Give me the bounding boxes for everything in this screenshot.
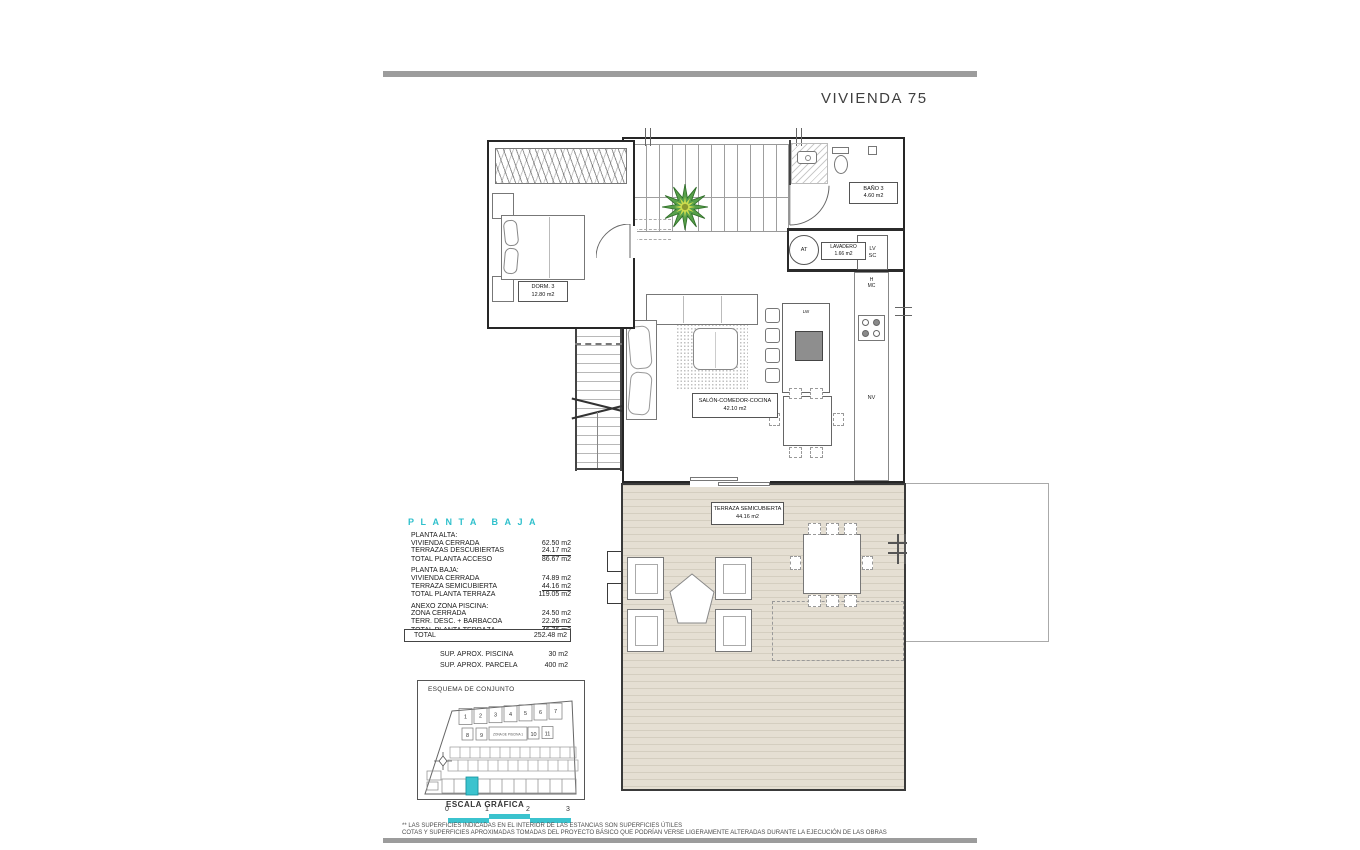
- extra-value: 30 m2: [549, 650, 568, 660]
- lw-tag: LW: [803, 309, 809, 315]
- site-plan-box: ESQUEMA DE CONJUNTO 1 2 3 4 5 6 7 8 9 10: [417, 680, 585, 800]
- area-legend: PLANTA ALTA: VIVIENDA CERRADA62.50 m2 TE…: [411, 532, 571, 634]
- legend-row: TOTAL PLANTA TERRAZA119.05 m2: [411, 591, 571, 599]
- extra-row: SUP. APROX. PARCELA 400 m2: [440, 661, 568, 671]
- water-heater: AT: [789, 235, 819, 265]
- lounge-chair-cushion: [723, 616, 746, 646]
- survey-tick: [650, 128, 651, 146]
- section-cut-line: [575, 343, 622, 345]
- lv-tag: LV: [869, 246, 875, 253]
- dining-chair: [810, 447, 823, 458]
- sofa-cushion: [627, 371, 653, 416]
- plot-number: 11: [545, 732, 551, 738]
- uncovered-terrace-area: [904, 483, 1049, 642]
- plot-number: 10: [530, 732, 536, 738]
- survey-tick: [645, 128, 646, 146]
- room-label-lavadero: LAVADERO 1.66 m2: [821, 242, 866, 260]
- total-label: TOTAL: [414, 632, 436, 639]
- extra-label: SUP. APROX. PARCELA: [440, 661, 518, 671]
- bbq-detail: [904, 534, 906, 564]
- bedroom-door-opening: [631, 226, 637, 258]
- lounge-chair: [627, 557, 664, 600]
- bottom-divider-bar: [383, 838, 977, 843]
- lounge-chair: [627, 609, 664, 652]
- legend-title: PLANTA BAJA: [408, 517, 542, 527]
- toilet-tank: [832, 147, 849, 154]
- plot-number: 4: [509, 712, 512, 718]
- legend-value: 119.05 m2: [538, 591, 571, 599]
- sliding-door-panel: [718, 482, 770, 486]
- lounge-chair-cushion: [635, 616, 658, 646]
- pool-zone-label: ZONA DE PISCINA 1: [493, 733, 523, 737]
- legend-value: 62.50 m2: [542, 540, 571, 548]
- bar-stool: [765, 308, 780, 323]
- coffee-table-line: [715, 332, 716, 368]
- room-name: TERRAZA SEMICUBIERTA: [714, 506, 782, 513]
- scale-tick: 3: [566, 806, 570, 813]
- sliding-door: [690, 477, 770, 487]
- extra-label: SUP. APROX. PISCINA: [440, 650, 513, 660]
- sink-drain: [805, 155, 811, 161]
- dining-chair: [789, 447, 802, 458]
- terrace-chair: [844, 595, 857, 607]
- bbq-detail: [888, 542, 907, 544]
- legend-row: PLANTA ALTA:: [411, 532, 571, 540]
- compass-icon: [434, 752, 452, 770]
- extra-value: 400 m2: [545, 661, 568, 671]
- plot-number: 3: [494, 713, 497, 719]
- lounge-chair: [715, 609, 752, 652]
- plant-icon: [661, 183, 709, 231]
- site-plan-map: 1 2 3 4 5 6 7 8 9 10 11 ZONA DE PISCINA …: [422, 697, 582, 797]
- oven-microwave: H MC: [855, 275, 888, 291]
- entry-door-arc: [789, 185, 830, 226]
- footnote-line2: COTAS Y SUPERFICIES APROXIMADAS TOMADAS …: [402, 830, 887, 836]
- scale-segment: [489, 814, 530, 819]
- terrace-chair: [826, 523, 839, 535]
- highlighted-unit: [466, 777, 478, 795]
- water-heater-tag: AT: [801, 247, 808, 254]
- stair-rail: [597, 412, 598, 469]
- plot-number: 8: [466, 733, 469, 739]
- island-sink: [795, 331, 823, 361]
- coffee-table: [693, 328, 738, 370]
- bar-stool: [765, 328, 780, 343]
- plot-number: 9: [480, 733, 483, 739]
- planter: [607, 583, 622, 604]
- room-name: LAVADERO: [830, 244, 857, 251]
- kitchen-counter: [854, 272, 889, 481]
- sink: [797, 151, 817, 164]
- dining-table: [783, 396, 832, 446]
- burner: [862, 330, 869, 337]
- bbq-detail: [888, 552, 907, 554]
- pillow: [503, 247, 519, 274]
- plan-sheet: VIVIENDA 75: [0, 0, 1360, 850]
- bed-cover-line: [549, 217, 550, 278]
- page-title: VIVIENDA 75: [821, 90, 928, 107]
- wardrobe: [495, 148, 627, 184]
- sliding-door-panel: [690, 477, 738, 481]
- plot-number: 6: [539, 710, 542, 716]
- room-label-terraza: TERRAZA SEMICUBIERTA 44.16 m2: [711, 502, 784, 525]
- legend-label: ANEXO ZONA PISCINA:: [411, 603, 488, 611]
- scale-tick: 0: [445, 806, 449, 813]
- plot-number: 2: [479, 714, 482, 720]
- stair-landing-line: [633, 197, 788, 198]
- site-plan-title: ESQUEMA DE CONJUNTO: [428, 686, 514, 693]
- sofa: [646, 294, 758, 325]
- room-area: 44.16 m2: [736, 514, 759, 521]
- plot-number: 7: [554, 709, 557, 715]
- legend-row: TERRAZAS DESCUBIERTAS24.17 m2: [411, 547, 571, 556]
- plot-number: 5: [524, 711, 527, 717]
- legend-row: ZONA CERRADA24.50 m2: [411, 610, 571, 618]
- lounge-chair: [715, 557, 752, 600]
- legend-value: 44.16 m2: [542, 583, 571, 592]
- bedroom-door-arc: [596, 224, 631, 259]
- extra-row: SUP. APROX. PISCINA 30 m2: [440, 650, 568, 660]
- stair-bottom-edge: [575, 468, 622, 470]
- lavadero-wall: [787, 228, 905, 231]
- room-name: DORM. 3: [532, 284, 555, 291]
- legend-label: VIVIENDA CERRADA: [411, 575, 479, 583]
- mc-tag: MC: [868, 283, 876, 289]
- legend-label: TERRAZA SEMICUBIERTA: [411, 583, 497, 592]
- room-label-dorm3: DORM. 3 12.80 m2: [518, 281, 568, 302]
- terrace-chair: [790, 556, 801, 570]
- legend-row: TERRAZA SEMICUBIERTA44.16 m2: [411, 583, 571, 592]
- toilet-bowl: [834, 155, 848, 174]
- legend-label: PLANTA BAJA:: [411, 567, 459, 575]
- vent-box: [868, 146, 877, 155]
- legend-label: TOTAL PLANTA TERRAZA: [411, 591, 495, 599]
- nv-tag: NV: [868, 395, 876, 402]
- lounge-chair-cushion: [635, 564, 658, 594]
- bar-stool: [765, 348, 780, 363]
- dishwasher: LW: [782, 308, 830, 316]
- room-label-bano3: BAÑO 3 4.60 m2: [849, 182, 898, 204]
- pentagon-table: [667, 571, 717, 629]
- room-name: BAÑO 3: [863, 186, 883, 193]
- terrace-chair: [808, 595, 821, 607]
- legend-row: VIVIENDA CERRADA62.50 m2: [411, 540, 571, 548]
- total-value: 252.48 m2: [534, 632, 567, 639]
- room-area: 42.10 m2: [724, 406, 747, 413]
- legend-total-row: TOTAL 252.48 m2: [404, 629, 571, 642]
- legend-row: TERR. DESC. + BARBACOA22.26 m2: [411, 618, 571, 627]
- sofa-cushion: [627, 325, 653, 370]
- legend-value: 24.17 m2: [542, 547, 571, 556]
- terrace-dining-table: [803, 534, 861, 594]
- scale-tick: 2: [526, 806, 530, 813]
- dining-chair: [833, 413, 844, 426]
- bbq-detail: [897, 534, 899, 564]
- legend-row: PLANTA BAJA:: [411, 567, 571, 575]
- sofa-cushion-line: [721, 296, 722, 323]
- legend-value: 86.67 m2: [542, 556, 571, 564]
- scale-bar: [448, 814, 571, 823]
- dining-chair: [789, 388, 802, 399]
- footnote-line1: ** LAS SUPERFICIES INDICADAS EN EL INTER…: [402, 823, 682, 829]
- cooktop: [858, 315, 885, 341]
- terrace-chair: [808, 523, 821, 535]
- fridge: NV: [855, 393, 888, 403]
- legend-label: PLANTA ALTA:: [411, 532, 457, 540]
- room-area: 1.66 m2: [834, 251, 852, 258]
- legend-value: 22.26 m2: [542, 618, 571, 627]
- legend-row: TOTAL PLANTA ACCESO86.67 m2: [411, 556, 571, 564]
- legend-label: VIVIENDA CERRADA: [411, 540, 479, 548]
- legend-row: ANEXO ZONA PISCINA:: [411, 603, 571, 611]
- legend-label: ZONA CERRADA: [411, 610, 466, 618]
- top-divider-bar: [383, 71, 977, 77]
- window-tick: [895, 315, 912, 316]
- dining-chair: [810, 388, 823, 399]
- terrace-chair: [862, 556, 873, 570]
- scale-tick: 1: [485, 806, 489, 813]
- plot-number: 1: [464, 715, 467, 721]
- room-label-salon: SALÓN-COMEDOR-COCINA 42.10 m2: [692, 393, 778, 418]
- bar-stool: [765, 368, 780, 383]
- legend-label: TOTAL PLANTA ACCESO: [411, 556, 492, 564]
- burner: [873, 330, 880, 337]
- legend-value: 24.50 m2: [542, 610, 571, 618]
- terrace-chair: [826, 595, 839, 607]
- legend-value: 74.89 m2: [542, 575, 571, 583]
- room-name: SALÓN-COMEDOR-COCINA: [699, 398, 771, 405]
- planter: [607, 551, 622, 572]
- lounge-chair-cushion: [723, 564, 746, 594]
- window-tick: [895, 307, 912, 308]
- pillow: [503, 219, 520, 246]
- terrace-dashed-zone: [772, 601, 904, 661]
- room-area: 12.80 m2: [532, 292, 555, 299]
- legend-label: TERRAZAS DESCUBIERTAS: [411, 547, 504, 556]
- terrace-chair: [844, 523, 857, 535]
- burner: [862, 319, 869, 326]
- legend-label: TERR. DESC. + BARBACOA: [411, 618, 502, 627]
- sc-tag: SC: [869, 253, 877, 260]
- sofa-cushion-line: [683, 296, 684, 323]
- legend-row: VIVIENDA CERRADA74.89 m2: [411, 575, 571, 583]
- burner: [873, 319, 880, 326]
- room-area: 4.60 m2: [864, 193, 884, 200]
